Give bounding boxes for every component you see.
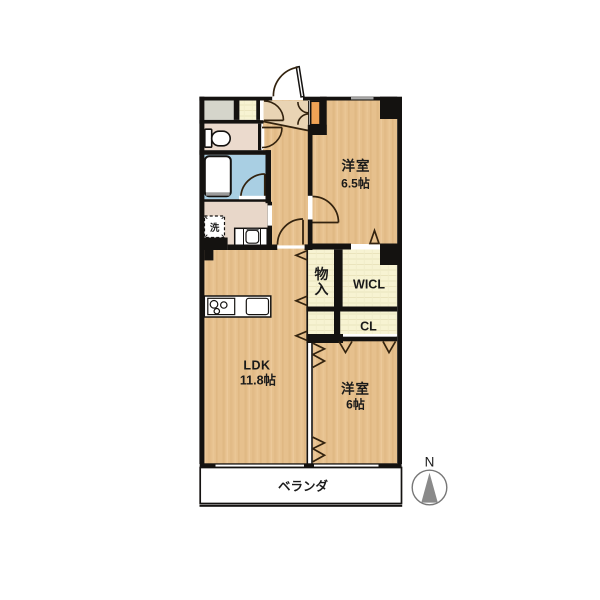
- svg-text:11.8帖: 11.8帖: [240, 373, 277, 388]
- svg-text:N: N: [425, 455, 435, 470]
- svg-text:入: 入: [315, 281, 329, 297]
- svg-text:ベランダ: ベランダ: [278, 479, 329, 494]
- svg-text:LDK: LDK: [243, 359, 270, 373]
- svg-text:6帖: 6帖: [346, 397, 365, 412]
- svg-text:洋室: 洋室: [342, 158, 371, 174]
- svg-text:6.5帖: 6.5帖: [341, 176, 370, 191]
- svg-text:洋室: 洋室: [341, 381, 370, 397]
- svg-text:CL: CL: [360, 320, 377, 334]
- svg-text:洗: 洗: [210, 222, 220, 234]
- svg-text:物: 物: [315, 266, 329, 282]
- svg-text:WICL: WICL: [353, 278, 385, 292]
